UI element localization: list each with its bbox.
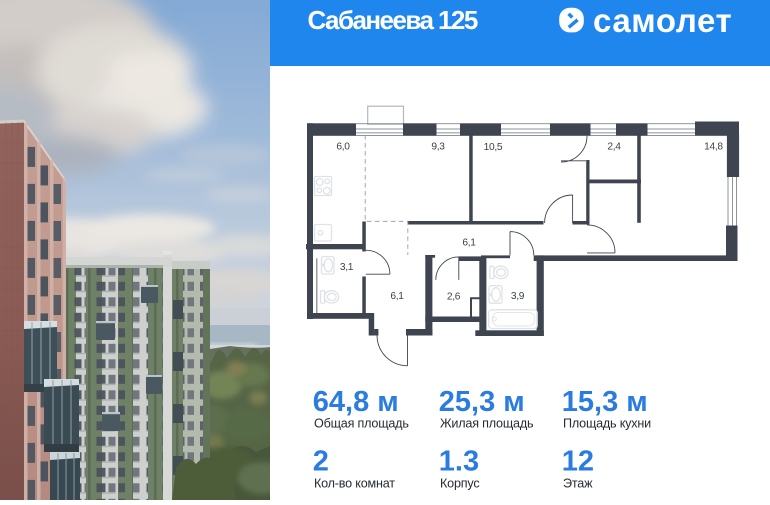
svg-text:Этаж: Этаж [563,477,593,491]
svg-text:Жилая площадь: Жилая площадь [440,417,534,431]
svg-text:6,1: 6,1 [390,291,404,302]
svg-text:Корпус: Корпус [440,477,479,491]
svg-text:10,5: 10,5 [484,142,503,153]
svg-text:14,8: 14,8 [704,142,723,153]
svg-text:Кол-во комнат: Кол-во комнат [314,477,395,491]
svg-text:3,9: 3,9 [511,291,525,302]
svg-text:25,3 м: 25,3 м [439,386,525,418]
svg-text:15,3 м: 15,3 м [562,386,648,418]
svg-text:2,4: 2,4 [607,142,621,153]
svg-text:64,8 м: 64,8 м [313,386,399,418]
svg-text:Общая площадь: Общая площадь [314,417,409,431]
svg-text:12: 12 [562,446,594,478]
svg-text:Площадь кухни: Площадь кухни [563,417,651,431]
svg-text:2: 2 [313,446,329,478]
svg-text:3,1: 3,1 [340,262,354,273]
svg-text:6,0: 6,0 [336,142,350,153]
svg-text:1.3: 1.3 [439,446,479,478]
svg-text:6,1: 6,1 [462,238,476,249]
svg-text:2,6: 2,6 [447,292,461,303]
svg-text:9,3: 9,3 [431,142,445,153]
